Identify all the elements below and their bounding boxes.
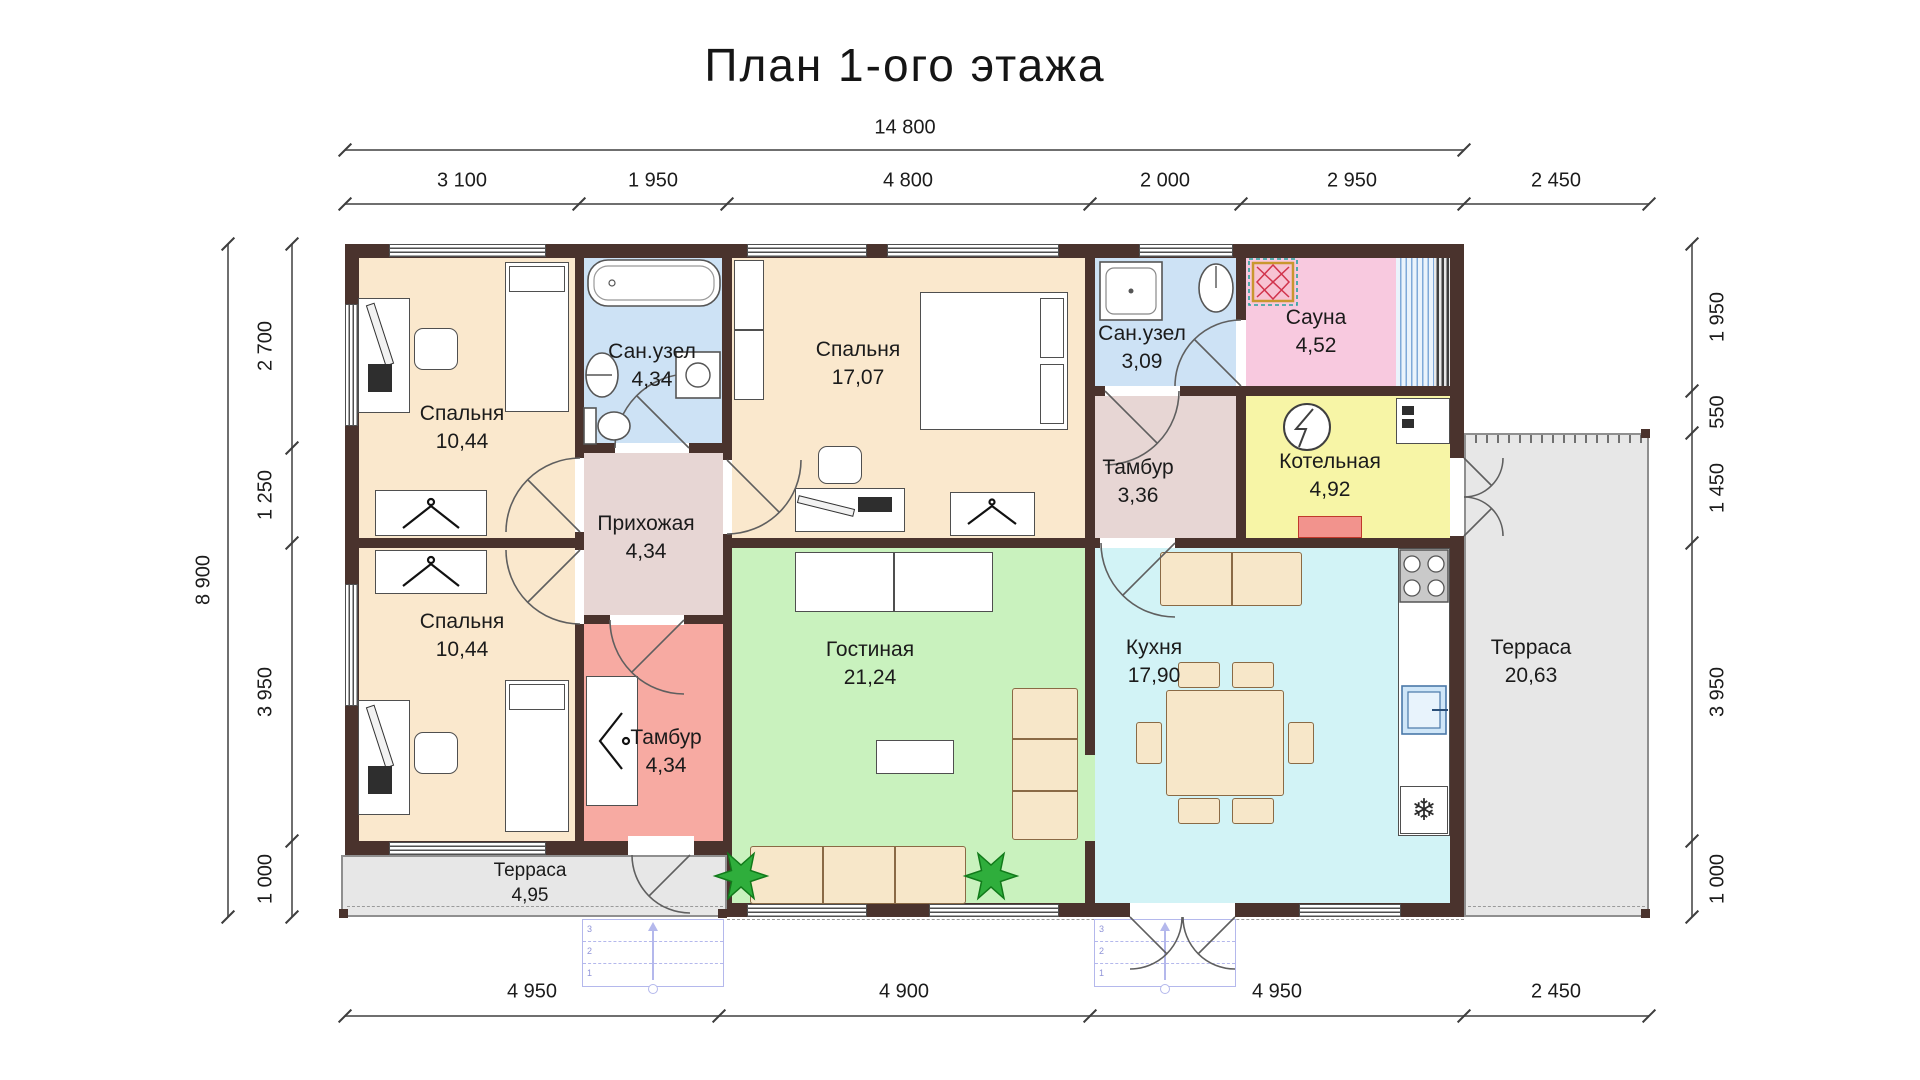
dimension-label: 4 900 <box>879 981 929 1004</box>
door-arc <box>610 620 684 694</box>
burner <box>1404 556 1420 572</box>
room-label-boiler: Котельная4,92 <box>1279 448 1381 504</box>
dimension-label: 1 950 <box>628 170 678 193</box>
dimension-label: 550 <box>1707 395 1730 428</box>
dimension-label: 4 950 <box>507 981 557 1004</box>
room-label-bedroom-top-left: Спальня10,44 <box>420 400 504 456</box>
burner <box>1428 580 1444 596</box>
sauna-stove-icon <box>1249 259 1297 305</box>
toilet <box>598 412 630 440</box>
room-label-kitchen: Кухня17,90 <box>1126 634 1182 690</box>
hanger-hook <box>428 557 434 563</box>
dimension-label: 1 250 <box>255 470 278 520</box>
room-name: Тамбур <box>630 724 701 752</box>
dimension-label: 8 900 <box>193 555 216 605</box>
room-area: 4,92 <box>1279 476 1381 504</box>
dimension-line <box>345 149 1464 151</box>
room-name: Прихожая <box>597 510 694 538</box>
dimension-label: 1 000 <box>1707 854 1730 904</box>
dimension-line <box>1691 244 1693 917</box>
door-arc <box>506 458 580 532</box>
dimension-label: 2 000 <box>1140 170 1190 193</box>
room-label-bath-main: Сан.узел4,34 <box>608 338 696 394</box>
room-name: Терраса <box>1491 634 1572 662</box>
dimension-label: 2 950 <box>1327 170 1377 193</box>
hanger-hook <box>428 499 434 505</box>
toilet-tank <box>584 408 596 444</box>
door-arc <box>1183 917 1235 969</box>
room-name: Гостиная <box>826 636 914 664</box>
room-area: 20,63 <box>1491 662 1572 690</box>
dimension-label: 3 950 <box>255 667 278 717</box>
room-area: 10,44 <box>420 636 504 664</box>
dimension-line <box>345 1015 1649 1017</box>
room-label-bedroom-bottom-left: Спальня10,44 <box>420 608 504 664</box>
room-label-terrace-right: Терраса20,63 <box>1491 634 1572 690</box>
room-name: Сан.узел <box>608 338 696 366</box>
dimension-label: 1 950 <box>1707 292 1730 342</box>
room-label-bath-small: Сан.узел3,09 <box>1098 320 1186 376</box>
door-arc <box>1464 497 1503 536</box>
dimension-label: 3 100 <box>437 170 487 193</box>
room-name: Сан.узел <box>1098 320 1186 348</box>
room-label-living: Гостиная21,24 <box>826 636 914 692</box>
hanger-icon <box>968 506 1016 524</box>
shower-drain <box>1129 289 1134 294</box>
room-name: Спальня <box>816 336 900 364</box>
dimension-label: 1 450 <box>1707 463 1730 513</box>
dimension-label: 2 450 <box>1531 170 1581 193</box>
door-arc <box>1464 458 1503 497</box>
bathtub <box>588 260 720 306</box>
door-arc <box>1101 543 1175 617</box>
room-area: 3,36 <box>1102 482 1173 510</box>
room-area: 4,95 <box>494 883 567 908</box>
dimension-label: 4 950 <box>1252 981 1302 1004</box>
room-area: 4,34 <box>630 752 701 780</box>
panel-circle <box>1284 404 1330 450</box>
plant-icon <box>965 854 1017 899</box>
dimension-label: 14 800 <box>874 117 935 140</box>
room-name: Спальня <box>420 400 504 428</box>
plant-icons <box>715 854 1017 899</box>
dimension-label: 2 450 <box>1531 981 1581 1004</box>
room-area: 17,07 <box>816 364 900 392</box>
burner <box>1428 556 1444 572</box>
plant-icon <box>715 854 767 899</box>
room-area: 21,24 <box>826 664 914 692</box>
room-label-tambour-front: Тамбур4,34 <box>630 724 701 780</box>
dimension-line <box>291 244 293 917</box>
dimension-label: 2 700 <box>255 321 278 371</box>
door-arc <box>632 855 690 913</box>
floor-plan-canvas: План 1-ого этажа <box>0 0 1920 1080</box>
door-arc <box>727 460 801 534</box>
door-arc <box>506 550 580 624</box>
room-name: Спальня <box>420 608 504 636</box>
hanger-hook <box>623 738 629 744</box>
hanger-icon <box>403 506 459 528</box>
dimension-line <box>227 244 229 917</box>
room-area: 17,90 <box>1126 662 1182 690</box>
room-name: Котельная <box>1279 448 1381 476</box>
dimension-line <box>345 203 1649 205</box>
room-label-hall: Прихожая4,34 <box>597 510 694 566</box>
hanger-icon <box>403 564 459 586</box>
hanger-icon <box>600 713 622 769</box>
room-name: Тамбур <box>1102 454 1173 482</box>
room-area: 4,34 <box>597 538 694 566</box>
room-area: 4,52 <box>1286 332 1347 360</box>
room-label-tambour-top: Тамбур3,36 <box>1102 454 1173 510</box>
dimension-label: 4 800 <box>883 170 933 193</box>
hanger-hook <box>990 500 995 505</box>
room-label-bedroom-top: Спальня17,07 <box>816 336 900 392</box>
room-label-sauna: Сауна4,52 <box>1286 304 1347 360</box>
dimension-label: 3 950 <box>1707 667 1730 717</box>
room-name: Терраса <box>494 858 567 883</box>
room-name: Кухня <box>1126 634 1182 662</box>
room-area: 4,34 <box>608 366 696 394</box>
burner <box>1404 580 1420 596</box>
dimension-label: 1 000 <box>255 854 278 904</box>
room-area: 3,09 <box>1098 348 1186 376</box>
door-arc <box>1130 917 1182 969</box>
room-area: 10,44 <box>420 428 504 456</box>
room-name: Сауна <box>1286 304 1347 332</box>
electric-panel-icon <box>1284 404 1330 450</box>
stove-burners <box>1400 550 1448 734</box>
room-label-terrace-bottom: Терраса4,95 <box>494 858 567 908</box>
